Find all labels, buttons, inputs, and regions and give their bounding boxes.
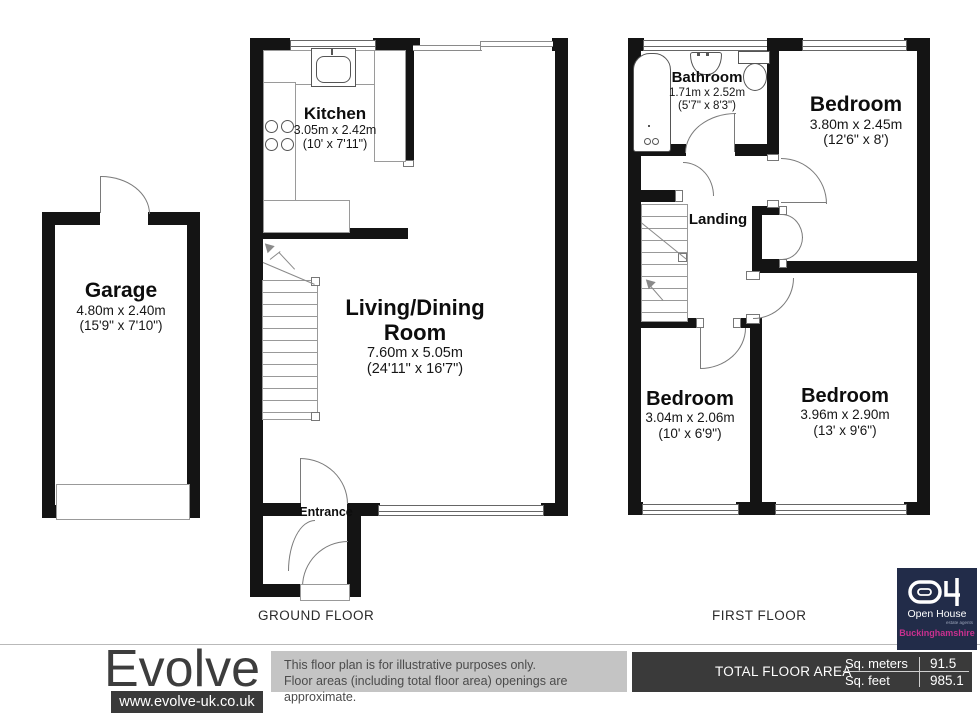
- room-name: Kitchen: [278, 104, 392, 123]
- basin-tap: [706, 53, 709, 56]
- bath-tap: [652, 138, 659, 145]
- entrance-label: Entrance: [296, 505, 356, 519]
- wall: [250, 584, 302, 597]
- open-house-subtext: estate agents: [897, 620, 973, 625]
- bathroom-label: Bathroom 1.71m x 2.52m (5'7" x 8'3"): [655, 70, 759, 113]
- kitchen-sink-basin: [316, 56, 351, 83]
- wall: [555, 38, 568, 516]
- door-jamb: [779, 259, 787, 268]
- basin-tap: [697, 53, 700, 56]
- room-dim-metric: 1.71m x 2.52m: [655, 87, 759, 100]
- website-bar[interactable]: www.evolve-uk.co.uk: [111, 691, 263, 713]
- table-vertical-divider: [919, 657, 920, 687]
- wall: [628, 502, 643, 515]
- hob-burner: [265, 138, 278, 151]
- open-house-logo-box: Open House estate agents Buckinghamshire: [897, 568, 977, 650]
- sq-meters-value: 91.5: [930, 656, 956, 671]
- stair-newel: [311, 412, 320, 421]
- open-house-name: Open House: [897, 608, 977, 620]
- landing-cupboard-door-arc: [683, 162, 714, 196]
- kitchen-label: Kitchen 3.05m x 2.42m (10' x 7'11"): [278, 104, 392, 151]
- wall: [42, 212, 55, 518]
- room-dim-metric: 3.04m x 2.06m: [630, 410, 750, 425]
- stair-arrow-line: [270, 251, 281, 260]
- ground-floor-caption: GROUND FLOOR: [258, 608, 374, 623]
- bedroom1-door-arc: [781, 158, 827, 204]
- wall: [736, 502, 776, 515]
- room-name: Garage: [56, 279, 186, 303]
- wall: [42, 212, 100, 225]
- room-dim-imperial: (15'9" x 7'10"): [56, 318, 186, 333]
- room-dim-metric: 4.80m x 2.40m: [56, 303, 186, 318]
- garage-door-arc: [101, 176, 150, 214]
- disclaimer-box: This floor plan is for illustrative purp…: [271, 651, 627, 692]
- bedroom2-bedroom3-divider: [750, 318, 762, 502]
- room-dim-imperial: (13' x 9'6"): [785, 423, 905, 438]
- party-wall-line: [413, 45, 482, 51]
- wall: [628, 38, 644, 51]
- bathroom-door-arc: [685, 113, 736, 153]
- room-dim-metric: 7.60m x 5.05m: [330, 345, 500, 361]
- room-dim-imperial: (12'6" x 8'): [796, 132, 916, 148]
- table-horizontal-divider: [843, 671, 969, 672]
- stair-arrow-line: [279, 252, 295, 270]
- bedroom3-door-arc: [753, 278, 794, 319]
- bedroom2-label: Bedroom 3.04m x 2.06m (10' x 6'9"): [630, 388, 750, 441]
- door-jamb: [767, 154, 779, 161]
- room-dim-metric: 3.05m x 2.42m: [278, 123, 392, 137]
- room-name: Bathroom: [655, 70, 759, 87]
- sq-feet-label: Sq. feet: [845, 673, 890, 688]
- open-house-region: Buckinghamshire: [897, 628, 977, 638]
- evolve-logo: Evolve: [104, 643, 260, 695]
- kitchen-counter: [263, 200, 350, 233]
- bedroom1-window: [802, 40, 907, 51]
- floor-plan-canvas: Garage 4.80m x 2.40m (15'9" x 7'10"): [0, 0, 980, 727]
- disclaimer-line2: Floor areas (including total floor area)…: [284, 673, 627, 705]
- bedroom3-label: Bedroom 3.96m x 2.90m (13' x 9'6"): [785, 385, 905, 438]
- bath-tap: [644, 138, 651, 145]
- wall: [904, 502, 930, 515]
- room-name-line2: Room: [330, 321, 500, 346]
- room-dim-imperial: (10' x 6'9"): [630, 426, 750, 441]
- front-door-threshold: [300, 584, 350, 601]
- landing-label: Landing: [678, 212, 758, 229]
- bedroom3-window: [775, 504, 907, 515]
- living-room-window: [378, 505, 544, 516]
- party-wall-line: [480, 41, 553, 47]
- entrance-door-arc: [300, 458, 348, 504]
- room-name: Bedroom: [630, 388, 750, 410]
- staircase: [262, 280, 318, 420]
- wall: [917, 38, 930, 515]
- room-name: Living/Dining: [330, 296, 500, 321]
- bath-drain: [648, 125, 650, 127]
- room-dim-imperial: (10' x 7'11"): [278, 137, 392, 151]
- living-room-label: Living/Dining Room 7.60m x 5.05m (24'11"…: [330, 296, 500, 378]
- cupboard-bifold-arc: [782, 237, 803, 260]
- room-name: Bedroom: [796, 93, 916, 117]
- wall: [904, 38, 930, 51]
- room-name: Bedroom: [785, 385, 905, 407]
- bedroom2-window: [642, 504, 739, 515]
- stair-arrow-head: [261, 240, 274, 253]
- total-floor-area-bar: TOTAL FLOOR AREA Sq. meters 91.5 Sq. fee…: [632, 652, 972, 692]
- door-jamb: [767, 200, 779, 208]
- door-jamb: [696, 318, 704, 328]
- sq-feet-value: 985.1: [930, 673, 964, 688]
- door-jamb: [733, 318, 741, 328]
- wall: [541, 503, 568, 516]
- room-dim-metric: 3.96m x 2.90m: [785, 407, 905, 422]
- hob-burner: [265, 120, 278, 133]
- disclaimer-line1: This floor plan is for illustrative purp…: [284, 657, 627, 673]
- first-floor-caption: FIRST FLOOR: [712, 608, 807, 623]
- stair-newel: [311, 277, 320, 286]
- total-floor-area-label: TOTAL FLOOR AREA: [715, 664, 852, 679]
- cupboard-wall: [752, 259, 782, 268]
- sq-meters-label: Sq. meters: [845, 656, 908, 671]
- room-name: Landing: [678, 212, 758, 229]
- garage-vehicle-door: [56, 484, 190, 520]
- room-name: Entrance: [296, 505, 356, 519]
- door-jamb: [675, 190, 683, 202]
- room-dim-metric: 3.80m x 2.45m: [796, 117, 916, 133]
- cupboard-bifold-arc: [782, 214, 803, 238]
- party-wall-step: [480, 41, 481, 50]
- bedroom2-door-arc: [700, 328, 746, 369]
- bedroom1-label: Bedroom 3.80m x 2.45m (12'6" x 8'): [796, 93, 916, 148]
- open-house-oh-icon: [907, 576, 967, 608]
- room-dim-imperial: (5'7" x 8'3"): [655, 100, 759, 113]
- bathroom-window: [643, 40, 770, 51]
- lobby-door-arc: [288, 520, 315, 571]
- wall: [187, 212, 200, 518]
- room-dim-imperial: (24'11" x 16'7"): [330, 361, 500, 377]
- kitchen-tap: [331, 48, 333, 55]
- wall: [148, 212, 200, 225]
- garage-label: Garage 4.80m x 2.40m (15'9" x 7'10"): [56, 279, 186, 333]
